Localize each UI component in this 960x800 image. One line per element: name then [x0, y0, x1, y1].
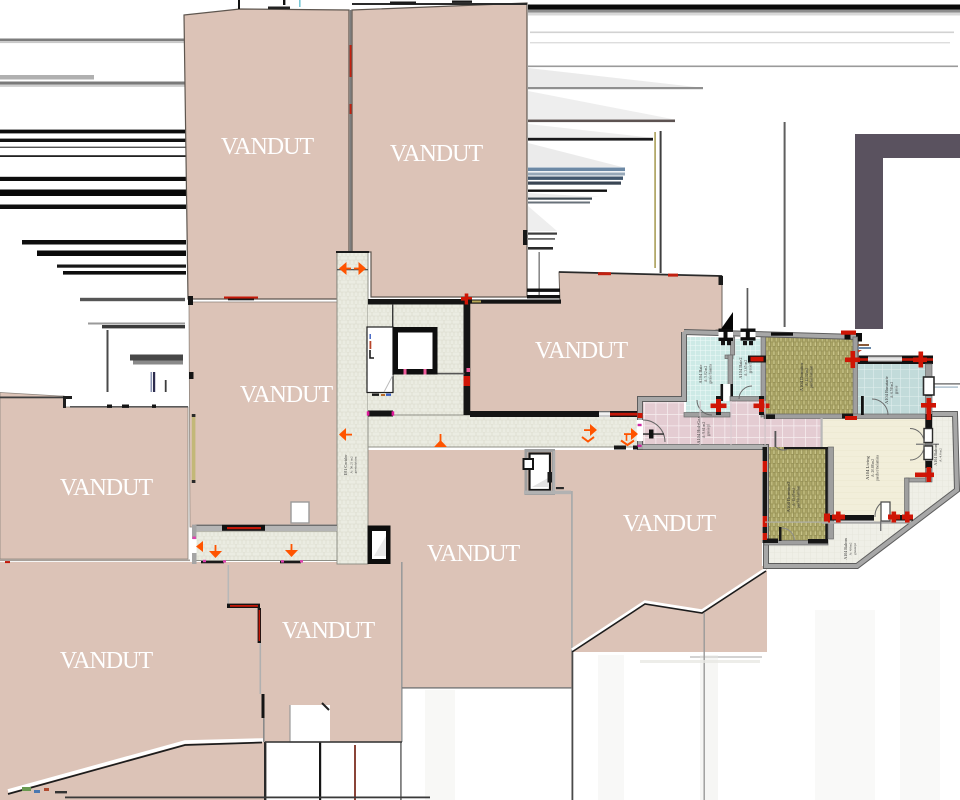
svg-text:A104 Bucatarie: A104 Bucatarie — [884, 376, 889, 404]
svg-text:E01 Coridor: E01 Coridor — [343, 454, 348, 475]
svg-text:VANDUT: VANDUT — [60, 475, 154, 501]
svg-text:VANDUT: VANDUT — [282, 618, 376, 644]
svg-text:VANDUT: VANDUT — [623, 511, 717, 537]
svg-text:A104 Living: A104 Living — [865, 455, 870, 479]
svg-text:VANDUT: VANDUT — [60, 648, 154, 674]
svg-text:A: 9.61 m2: A: 9.61 m2 — [702, 422, 706, 438]
svg-text:parchet/laminat: parchet/laminat — [797, 486, 801, 508]
svg-text:A: 20.88 m2: A: 20.88 m2 — [871, 459, 875, 477]
svg-text:A: 5.02 m2: A: 5.02 m2 — [704, 366, 708, 382]
svg-text:VANDUT: VANDUT — [240, 382, 334, 408]
svg-text:VANDUT: VANDUT — [427, 541, 521, 567]
svg-text:gresie/pl: gresie/pl — [853, 543, 857, 555]
svg-text:A: 3.65 m2: A: 3.65 m2 — [744, 360, 748, 376]
svg-text:A104 Balcon: A104 Balcon — [843, 538, 848, 559]
svg-text:parchet/melamina: parchet/melamina — [876, 455, 880, 481]
svg-text:gresie/faianta: gresie/faianta — [708, 364, 712, 384]
svg-text:A104 Dormitor2: A104 Dormitor2 — [786, 481, 791, 512]
svg-text:VANDUT: VANDUT — [535, 338, 629, 364]
svg-text:A104 Dormitor: A104 Dormitor — [799, 362, 804, 391]
svg-text:VANDUT: VANDUT — [221, 134, 315, 160]
svg-text:gresie/pl: gresie/pl — [706, 424, 710, 436]
svg-text:A: 6.58 m2: A: 6.58 m2 — [890, 382, 894, 398]
svg-text:VANDUT: VANDUT — [390, 141, 484, 167]
svg-text:A: 12.05 m2: A: 12.05 m2 — [792, 488, 796, 506]
svg-text:gresie/piatra: gresie/piatra — [354, 456, 358, 473]
svg-text:gresie/f: gresie/f — [748, 362, 752, 374]
svg-text:A104 Baie2: A104 Baie2 — [738, 357, 743, 378]
svg-text:A104 Baie: A104 Baie — [698, 365, 703, 384]
svg-text:A104 Balcon: A104 Balcon — [933, 444, 938, 465]
svg-text:gresie: gresie — [894, 385, 898, 394]
svg-text:A: 13.32 m2: A: 13.32 m2 — [805, 368, 809, 386]
svg-text:A104 Hol+Gr.s: A104 Hol+Gr.s — [696, 416, 701, 443]
svg-text:parchet/laminat: parchet/laminat — [810, 366, 814, 388]
svg-text:A: 4.6 m2: A: 4.6 m2 — [939, 448, 943, 462]
